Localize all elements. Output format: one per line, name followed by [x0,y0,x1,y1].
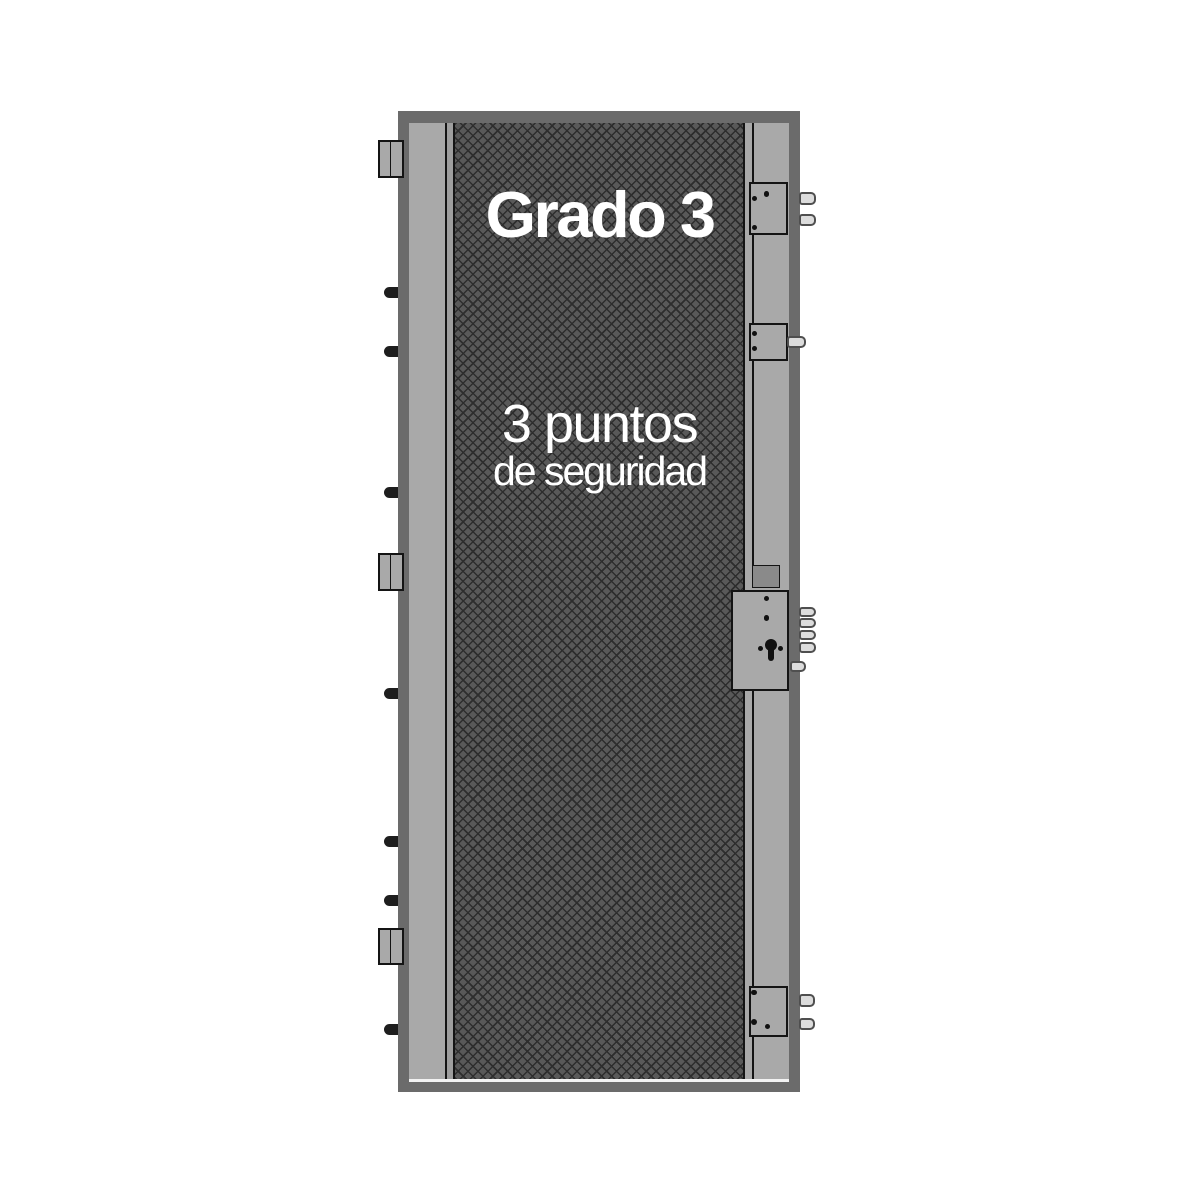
door-bottom-edge-highlight [409,1079,789,1082]
deadbolt-bolt [799,192,816,205]
lock-box-main [731,590,789,691]
deadbolt-bolt [799,214,816,226]
grade-label: Grado 3 [455,182,744,247]
keyhole-tail-icon [768,645,774,661]
screw-dot [751,990,757,996]
door-hinge [378,140,404,178]
screw-dot [752,346,757,351]
door-hinge [378,553,404,592]
lock-stile-divider-line [752,123,754,182]
anti-lever-pin [384,1024,398,1035]
screw-dot [764,191,770,197]
screw-dot [765,1024,770,1029]
lock-cylinder-plate [752,565,780,588]
deadbolt-bolt [799,994,815,1007]
door-core-crosshatch [455,123,744,1079]
anti-lever-pin [384,287,398,298]
door-hinge [378,928,404,966]
lock-stile-divider-line [752,691,754,986]
deadbolt-bolt [799,630,816,640]
latch-bolt [790,661,806,673]
hinge-stile [409,123,445,1079]
screw-dot [778,646,783,651]
screw-dot [751,1019,757,1025]
deadbolt-bolt [799,607,816,618]
security-points-line1: 3 puntos [455,397,744,451]
deadbolt-bolt [799,642,816,654]
anti-lever-pin [384,688,398,699]
deadbolt-bolt [799,1018,815,1030]
latch-bolt [787,336,806,348]
screw-dot [764,596,769,601]
anti-lever-pin [384,895,398,906]
diagram-canvas: Grado 3 3 puntos de seguridad [0,0,1200,1200]
lock-stile-divider-line [752,361,754,565]
screw-dot [752,331,757,336]
anti-lever-pin [384,487,398,498]
anti-lever-pin [384,836,398,847]
security-points-line2: de seguridad [455,451,744,492]
anti-lever-pin [384,346,398,357]
lock-stile-divider-line [752,1037,754,1079]
lock-stile-divider-line [752,235,754,323]
lock-box-upper-mid [749,323,788,362]
deadbolt-bolt [799,618,816,628]
